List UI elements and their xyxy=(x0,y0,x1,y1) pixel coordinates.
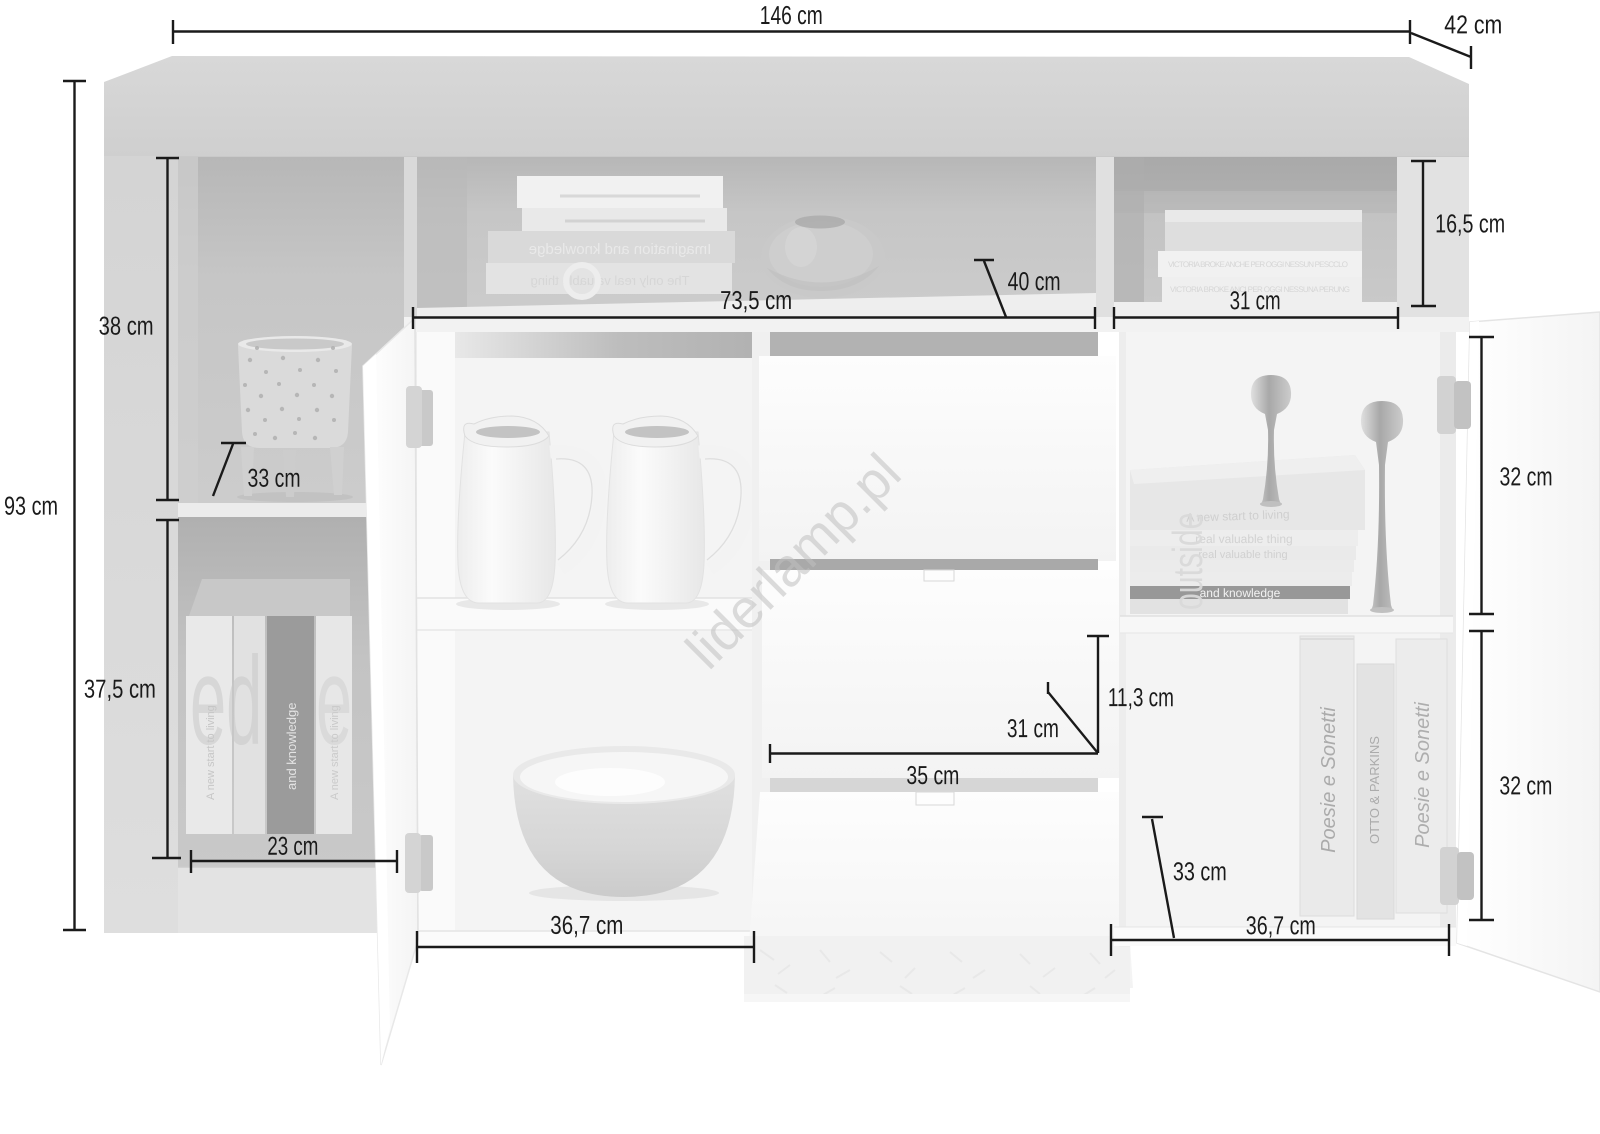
svg-text:40 cm: 40 cm xyxy=(1008,266,1061,296)
svg-text:ed: ed xyxy=(190,632,262,771)
svg-text:35 cm: 35 cm xyxy=(906,760,959,790)
svg-text:37,5 cm: 37,5 cm xyxy=(84,674,156,704)
svg-text:Poesie e Sonetti: Poesie e Sonetti xyxy=(1412,702,1434,848)
svg-text:The only real valuable thing: The only real valuable thing xyxy=(531,273,690,288)
svg-text:16,5 cm: 16,5 cm xyxy=(1435,208,1505,238)
svg-text:32 cm: 32 cm xyxy=(1499,770,1552,800)
svg-text:outside: outside xyxy=(1164,513,1211,610)
svg-text:Poesie e Sonetti: Poesie e Sonetti xyxy=(1318,707,1340,853)
svg-text:31 cm: 31 cm xyxy=(1230,285,1281,315)
svg-text:33 cm: 33 cm xyxy=(1173,856,1227,886)
svg-text:real valuable thing: real valuable thing xyxy=(1198,549,1287,561)
svg-text:and knowledge: and knowledge xyxy=(284,703,299,790)
svg-text:36,7 cm: 36,7 cm xyxy=(550,910,623,940)
svg-text:42 cm: 42 cm xyxy=(1444,9,1502,39)
svg-text:38 cm: 38 cm xyxy=(99,311,154,341)
svg-text:and knowledge: and knowledge xyxy=(1200,586,1281,600)
svg-text:36,7 cm: 36,7 cm xyxy=(1246,910,1316,940)
svg-text:11,3 cm: 11,3 cm xyxy=(1108,682,1174,712)
svg-text:VICTORIA BROKE ANCHE PER OGGI: VICTORIA BROKE ANCHE PER OGGI NESSUN PES… xyxy=(1168,260,1348,269)
svg-text:32 cm: 32 cm xyxy=(1500,461,1553,491)
svg-text:A new start to living: A new start to living xyxy=(205,705,217,800)
svg-text:146 cm: 146 cm xyxy=(760,0,823,30)
svg-text:93 cm: 93 cm xyxy=(4,491,58,521)
svg-text:31 cm: 31 cm xyxy=(1007,713,1059,743)
svg-text:Imagination and knowledge: Imagination and knowledge xyxy=(529,241,712,258)
svg-text:73,5 cm: 73,5 cm xyxy=(720,285,792,315)
svg-text:A new start to living: A new start to living xyxy=(329,705,341,800)
svg-text:23 cm: 23 cm xyxy=(267,831,318,861)
svg-text:33 cm: 33 cm xyxy=(248,463,301,493)
svg-text:OTTO & PARKINS: OTTO & PARKINS xyxy=(1367,736,1382,844)
